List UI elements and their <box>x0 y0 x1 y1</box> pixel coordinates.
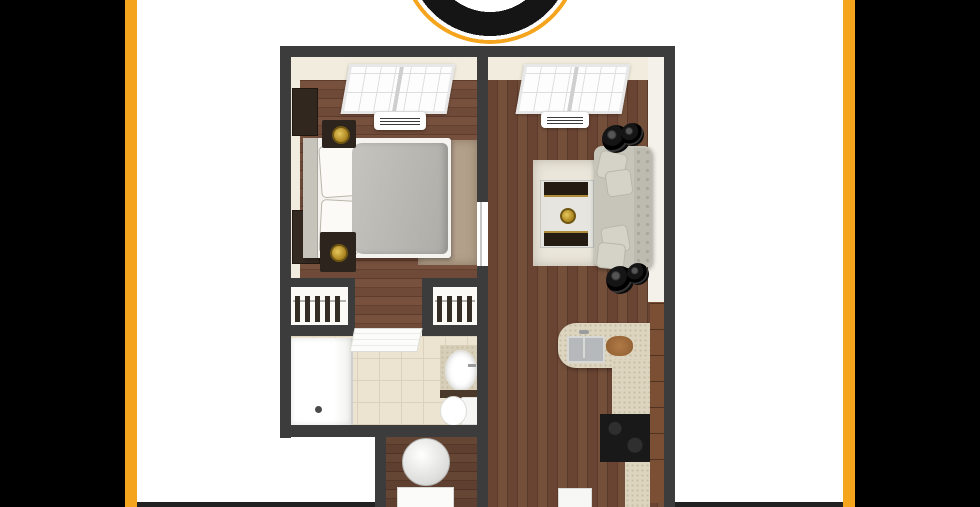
bathroom-vessel-sink <box>445 350 477 391</box>
kitchen-faucet-icon <box>579 330 589 334</box>
side-table-top-small <box>621 123 644 146</box>
bed-duvet <box>352 143 448 254</box>
living-hvac-unit <box>541 112 589 128</box>
sofa-pillow-2 <box>604 168 633 197</box>
closet-right-hanging-clothes <box>437 296 473 322</box>
flyer-canvas <box>0 0 980 507</box>
wall-top <box>280 46 675 57</box>
floor-plan <box>0 0 980 507</box>
sofa-backrest <box>634 148 652 266</box>
cutting-board-icon <box>606 336 633 356</box>
closet-left-hanging-clothes <box>295 296 344 322</box>
bathroom-shower <box>291 338 353 425</box>
kitchen-white-appliance <box>558 488 592 507</box>
coffee-table-bench-bottom <box>544 231 588 246</box>
bedroom-window <box>341 64 456 114</box>
bedroom-hvac-unit <box>374 112 426 130</box>
laundry-base-appliance <box>397 487 454 507</box>
coffee-table-bench-top <box>544 182 588 197</box>
wall-bathroom-bottom <box>280 425 488 437</box>
wall-divider-lower <box>477 266 488 507</box>
kitchen-sink <box>567 336 605 363</box>
nightstand-top-gold-lamp-icon <box>332 126 350 144</box>
kitchen-counter-lower <box>625 458 650 507</box>
wall-right <box>664 46 675 507</box>
bathroom-open-door <box>349 328 422 352</box>
bathroom-faucet-icon <box>468 364 476 367</box>
kitchen-sink-divider <box>583 337 585 358</box>
divider-doorway <box>477 202 488 266</box>
living-window <box>516 64 631 114</box>
bed-headboard <box>303 138 318 258</box>
divider-door-leaf <box>480 202 482 266</box>
range-cooktop <box>600 414 650 462</box>
nightstand-bottom-gold-lamp-icon <box>330 244 348 262</box>
bedroom-wall-art <box>292 88 318 136</box>
toilet-bowl <box>440 396 467 426</box>
wall-divider-upper <box>477 57 488 202</box>
wall-laundry-left <box>375 437 386 507</box>
kitchen-cabinet-run <box>650 302 664 460</box>
side-table-bottom-small <box>627 263 649 285</box>
wall-left <box>280 46 291 438</box>
washer <box>402 438 450 486</box>
hallway-floor <box>355 278 422 332</box>
coffee-table-gold-decor-icon <box>560 208 576 224</box>
kitchen-cabinet-lower <box>650 460 664 503</box>
shower-head-icon <box>315 406 322 413</box>
